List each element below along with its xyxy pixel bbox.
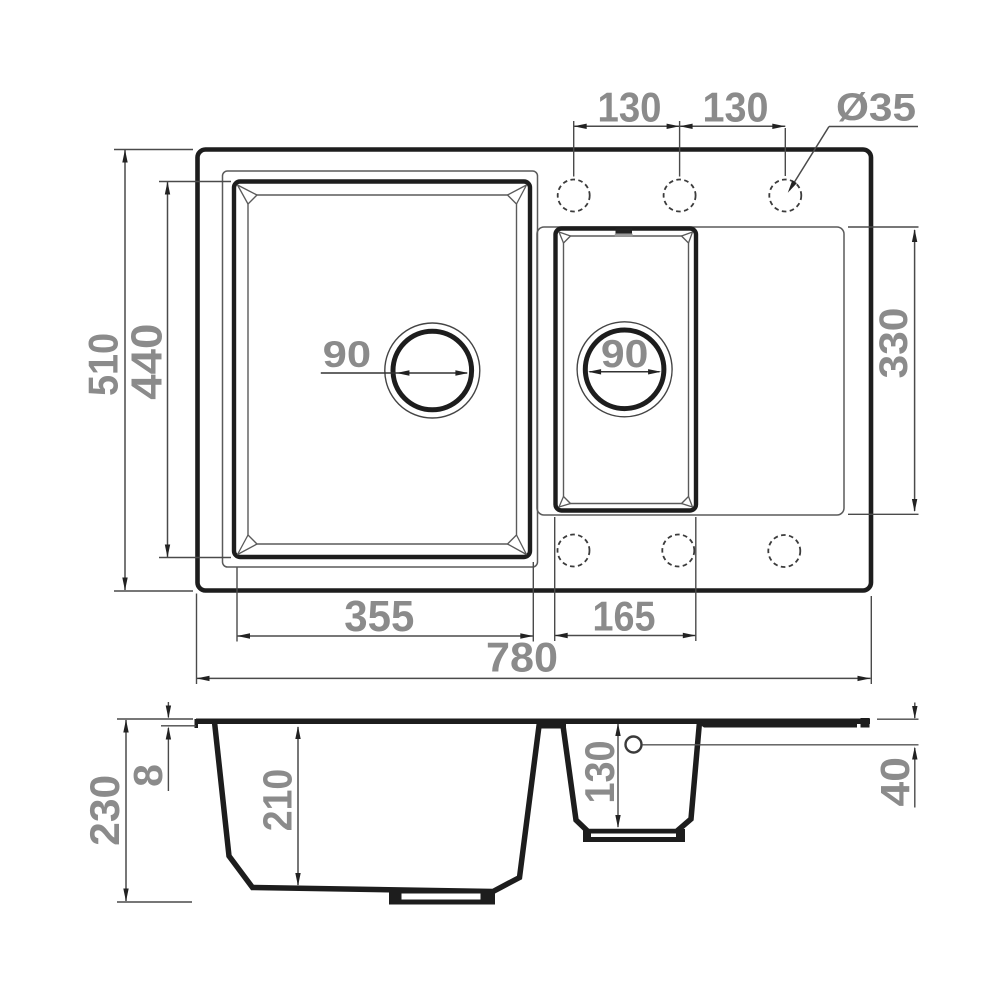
svg-text:130: 130	[703, 84, 769, 131]
svg-text:440: 440	[123, 324, 172, 400]
svg-text:Ø35: Ø35	[836, 87, 916, 130]
svg-text:40: 40	[872, 757, 918, 807]
svg-text:330: 330	[872, 308, 916, 379]
svg-text:165: 165	[593, 593, 656, 640]
svg-text:210: 210	[255, 769, 301, 832]
svg-text:90: 90	[601, 333, 649, 376]
svg-text:130: 130	[576, 741, 623, 804]
svg-text:230: 230	[81, 775, 128, 846]
svg-text:90: 90	[323, 333, 372, 375]
svg-text:510: 510	[80, 333, 127, 396]
svg-text:780: 780	[486, 634, 558, 681]
svg-text:355: 355	[344, 592, 414, 641]
svg-text:8: 8	[125, 764, 171, 787]
svg-text:130: 130	[598, 84, 662, 131]
